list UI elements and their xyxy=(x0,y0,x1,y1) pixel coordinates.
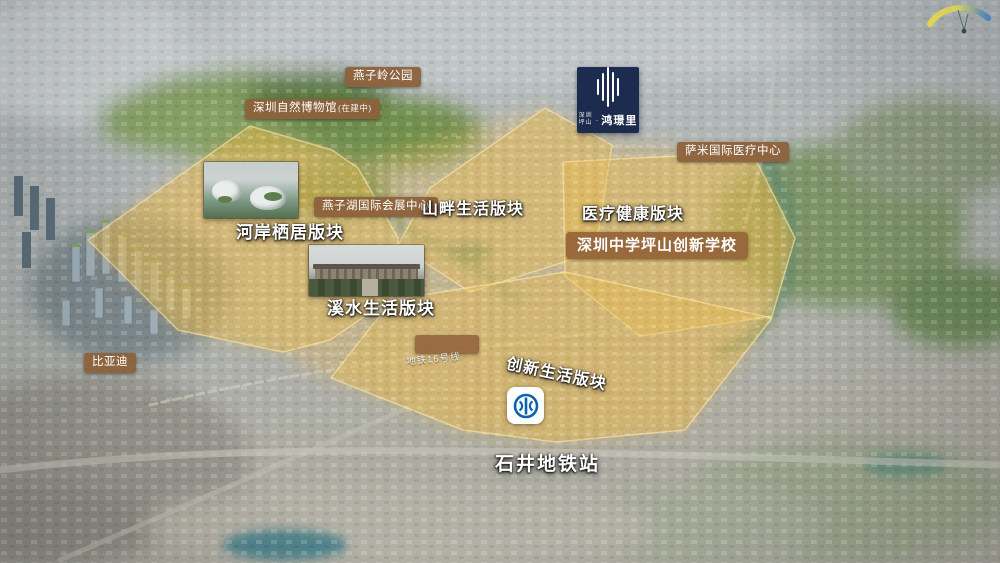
aerial-city-rendering xyxy=(0,0,1000,563)
aerial-masterplan-map: 深圳 坪山 · 鸿璟里 燕子岭公园 深圳自然博物馆(在建中) 燕子湖国际会展中心… xyxy=(0,0,1000,563)
logo-brand-name: 鸿璟里 xyxy=(601,112,637,128)
logo-wordmark: 深圳 坪山 · 鸿璟里 xyxy=(579,112,638,128)
badge-yanzihu-expo-center: 燕子湖国际会展中心 xyxy=(314,197,438,217)
zone-label-mountain-living: 山畔生活版块 xyxy=(422,195,524,219)
badge-nature-museum: 深圳自然博物馆(在建中) xyxy=(245,99,380,119)
logo-bars-icon xyxy=(597,67,619,107)
badge-byd: 比亚迪 xyxy=(84,353,136,373)
shenzhen-metro-icon xyxy=(507,387,544,424)
paraglider-icon xyxy=(924,2,996,42)
inset-photo-station-building xyxy=(309,245,424,296)
expo-greenery-shape xyxy=(264,192,282,201)
expo-greenery-shape xyxy=(218,196,232,203)
logo-separator: · xyxy=(596,116,599,125)
badge-sami-medical-center: 萨米国际医疗中心 xyxy=(677,142,789,162)
project-logo: 深圳 坪山 · 鸿璟里 xyxy=(577,67,639,133)
station-facade-shape xyxy=(315,269,418,279)
station-label-shijing: 石井地铁站 xyxy=(495,449,600,476)
zone-label-riverside-living: 河岸栖居版块 xyxy=(236,218,344,243)
zone-label-medical-health: 医疗健康版块 xyxy=(582,200,684,224)
inset-photo-expo-center xyxy=(204,162,298,218)
logo-prefix: 深圳 坪山 xyxy=(579,113,593,127)
badge-shenzhen-middle-school: 深圳中学坪山创新学校 xyxy=(566,232,748,259)
zone-label-creek-living: 溪水生活版块 xyxy=(327,294,435,319)
badge-yanziling-park: 燕子岭公园 xyxy=(345,67,421,87)
